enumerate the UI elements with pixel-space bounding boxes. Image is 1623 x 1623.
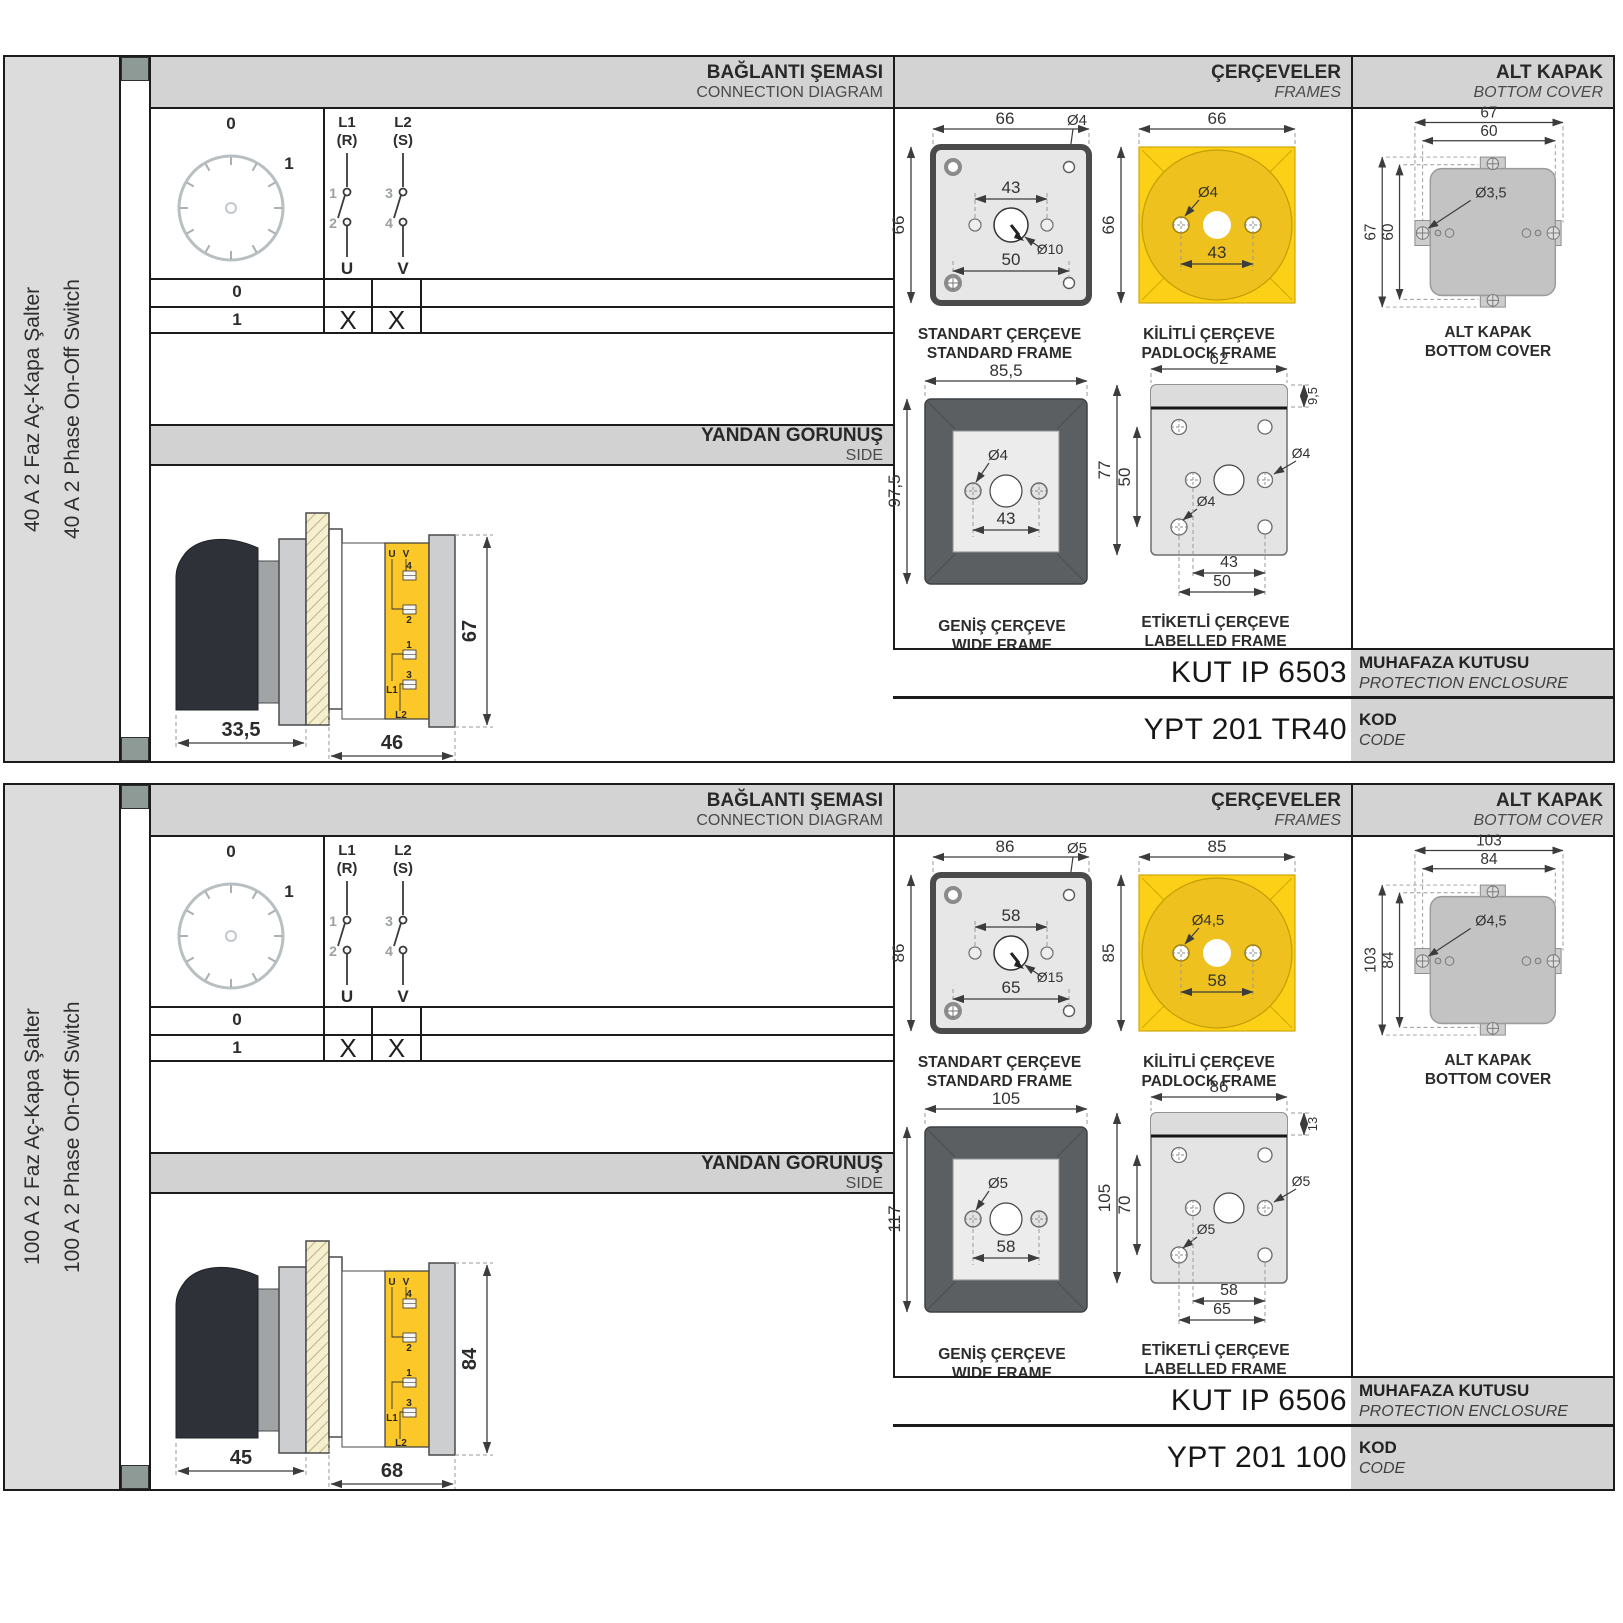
dim-label: 66	[889, 216, 908, 235]
pole2-contact	[394, 153, 407, 257]
contact-diagram: L1 (R) L2 (S) 1 2 3 4 U V	[323, 839, 473, 1006]
labelled-frame-label: ETİKETLİ ÇERÇEVELABELLED FRAME	[1103, 1341, 1328, 1380]
table-row-position-0: 0	[151, 1006, 893, 1034]
position-label: 1	[151, 1036, 323, 1060]
dim-label: 58	[1220, 1282, 1238, 1299]
product-section-100a: 100 A 2 Faz Aç-Kapa Şalter 100 A 2 Phase…	[3, 783, 1615, 1491]
contact-number: 3	[385, 185, 393, 201]
cover-body	[1415, 885, 1561, 1035]
hole-diameter-label: Ø5	[1292, 1173, 1311, 1189]
product-name-english: 100 A 2 Phase On-Off Switch	[61, 785, 85, 1489]
terminal-u-label: U	[341, 987, 353, 1006]
spine-column	[121, 57, 151, 761]
standard-frame-label: STANDART ÇERÇEVESTANDARD FRAME	[897, 325, 1102, 364]
table-row-position-0: 0	[151, 278, 893, 306]
product-name-turkish: 40 A 2 Faz Aç-Kapa Şalter	[21, 57, 45, 761]
pole1-contact	[338, 881, 351, 985]
hole-diameter-label: Ø5	[1067, 840, 1087, 857]
switch-position-dial: 0 1	[151, 839, 323, 1006]
svg-text:L1: L1	[386, 1413, 398, 1424]
pole1-contact	[338, 153, 351, 257]
table-filler-cell	[420, 308, 893, 332]
dim-label: 84	[1480, 851, 1498, 868]
dim-label: 117	[885, 1205, 904, 1232]
dim-label: 67	[459, 620, 481, 642]
contact-number: 3	[385, 913, 393, 929]
dim-label: 50	[1002, 250, 1021, 269]
contact-closed-mark: X	[371, 1036, 420, 1060]
dim-label: 13	[1305, 1117, 1320, 1131]
side-view-header: YANDAN GÖRÜNÜŞ SIDE	[151, 1152, 893, 1194]
svg-text:U: U	[388, 1277, 395, 1288]
bottom-cover-drawing: 67 60 67 60	[1363, 109, 1613, 319]
dim-label: 65	[1002, 978, 1021, 997]
contact-closed-mark: X	[371, 308, 420, 332]
svg-text:3: 3	[406, 1398, 412, 1409]
position-label: 1	[151, 308, 323, 332]
table-filler-cell	[420, 1036, 893, 1060]
dim-label: 65	[1213, 1301, 1231, 1318]
pole1-sublabel: (R)	[337, 860, 358, 877]
bottom-cover-label: ALT KAPAKBOTTOM COVER	[1363, 1051, 1613, 1090]
frame-body	[933, 147, 1089, 303]
svg-text:3: 3	[406, 670, 412, 681]
svg-text:V: V	[403, 549, 410, 560]
wide-frame-drawing: 85,5 97,5 Ø4	[897, 365, 1107, 615]
side-title-tr: YANDAN GÖRÜNÜŞ	[701, 425, 883, 447]
dim-label: 66	[1208, 109, 1227, 128]
standard-frame-drawing: 86 Ø5 86	[897, 839, 1102, 1051]
wide-frame-drawing: 105 117 Ø5	[897, 1093, 1107, 1343]
registration-mark-bottom	[121, 737, 149, 761]
frame-body	[1151, 1113, 1287, 1283]
contact-number: 2	[329, 215, 337, 231]
dim-label: 77	[1095, 461, 1114, 480]
dim-label: 84	[1380, 951, 1397, 969]
switch-side-profile	[176, 513, 455, 727]
svg-text:L1: L1	[386, 685, 398, 696]
dial-position-0: 0	[226, 842, 235, 861]
side-title-en: SIDE	[846, 1175, 883, 1193]
position-label: 0	[151, 280, 323, 306]
cover-body	[1415, 157, 1561, 307]
contact-closed-mark: X	[323, 1036, 371, 1060]
bottom-cover-label: ALT KAPAKBOTTOM COVER	[1363, 323, 1613, 362]
header-title-tr: BAĞLANTI ŞEMASI	[707, 62, 883, 84]
frames-header: ÇERÇEVELER FRAMES	[893, 57, 1351, 109]
dim-label: 86	[889, 944, 908, 963]
header-title-tr: ÇERÇEVELER	[1211, 790, 1341, 812]
dim-label: 97,5	[885, 474, 904, 507]
dim-label: 85	[1208, 837, 1227, 856]
padlock-frame-drawing: 85 85 Ø4,5	[1109, 839, 1309, 1051]
svg-text:1: 1	[406, 1368, 412, 1379]
contact-number: 4	[385, 215, 393, 231]
table-filler-cell	[420, 280, 893, 306]
product-code-value: YPT 201 TR40	[893, 696, 1351, 761]
hole-diameter-label: Ø3,5	[1475, 185, 1506, 201]
svg-text:4: 4	[406, 1289, 412, 1300]
enclosure-code-value: KUT IP 6506	[893, 1376, 1351, 1424]
header-title-tr: ALT KAPAK	[1496, 62, 1603, 84]
frame-body	[1139, 875, 1295, 1031]
contact-diagram: L1 (R) L2 (S) 1 2 3 4 U V	[323, 111, 473, 278]
pole1-sublabel: (R)	[337, 132, 358, 149]
side-title-en: SIDE	[846, 447, 883, 465]
header-title-en: CONNECTION DIAGRAM	[696, 84, 883, 102]
enclosure-label: MUHAFAZA KUTUSU PROTECTION ENCLOSURE	[1351, 1376, 1613, 1424]
contact-closed-mark: X	[323, 308, 371, 332]
hole-diameter-label: Ø15	[1037, 969, 1064, 985]
registration-mark-top	[121, 57, 149, 81]
dim-label: 9,5	[1305, 387, 1320, 405]
product-name-english: 40 A 2 Phase On-Off Switch	[61, 57, 85, 761]
labelled-frame-label: ETİKETLİ ÇERÇEVELABELLED FRAME	[1103, 613, 1328, 652]
terminal-v-label: V	[397, 259, 409, 278]
side-view-header: YANDAN GÖRÜNÜŞ SIDE	[151, 424, 893, 466]
hole-diameter-label: Ø4	[1067, 112, 1087, 129]
bottom-cover-header: ALT KAPAK BOTTOM COVER	[1351, 785, 1613, 837]
bottom-cover-header: ALT KAPAK BOTTOM COVER	[1351, 57, 1613, 109]
hole-diameter-label: Ø4,5	[1475, 913, 1506, 929]
dim-label: 85	[1099, 944, 1118, 963]
pole1-label: L1	[338, 114, 356, 131]
product-name-turkish: 100 A 2 Faz Aç-Kapa Şalter	[21, 785, 45, 1489]
dim-label: 84	[459, 1347, 481, 1370]
header-title-en: BOTTOM COVER	[1474, 812, 1604, 830]
pole2-label: L2	[394, 114, 412, 131]
svg-text:L2: L2	[395, 710, 407, 721]
dim-label: 50	[1115, 468, 1134, 487]
header-title-en: CONNECTION DIAGRAM	[696, 812, 883, 830]
contact-state-cell	[323, 280, 371, 306]
table-row-position-1: 1 X X	[151, 1034, 893, 1062]
enclosure-code-value: KUT IP 6503	[893, 648, 1351, 696]
switch-side-profile	[176, 1241, 455, 1455]
frame-body	[925, 1127, 1087, 1312]
dial-position-0: 0	[226, 114, 235, 133]
dim-label: 66	[996, 109, 1015, 128]
dim-label: 58	[997, 1237, 1016, 1256]
dim-label: 60	[1380, 224, 1397, 241]
dim-label: 68	[381, 1460, 403, 1482]
product-section-40a: 40 A 2 Faz Aç-Kapa Şalter 40 A 2 Phase O…	[3, 55, 1615, 763]
frame-body	[1139, 147, 1295, 303]
hole-diameter-label: Ø4,5	[1192, 912, 1225, 929]
table-row-position-1: 1 X X	[151, 306, 893, 334]
dial-face	[179, 884, 283, 988]
dim-label: 62	[1210, 349, 1229, 368]
contact-number: 1	[329, 185, 337, 201]
dim-label: 66	[1099, 216, 1118, 235]
frame-body	[925, 399, 1087, 584]
product-sidebar: 100 A 2 Faz Aç-Kapa Şalter 100 A 2 Phase…	[5, 785, 121, 1489]
labelled-frame-drawing: 62 9,5 77 50	[1103, 355, 1328, 610]
dim-label: 58	[1208, 971, 1227, 990]
dim-label: 105	[1095, 1184, 1114, 1212]
svg-text:2: 2	[406, 615, 412, 626]
terminal-v-label: V	[397, 987, 409, 1006]
dial-face	[179, 156, 283, 260]
pole2-sublabel: (S)	[393, 132, 413, 149]
product-code-value: YPT 201 100	[893, 1424, 1351, 1489]
enclosure-label: MUHAFAZA KUTUSU PROTECTION ENCLOSURE	[1351, 648, 1613, 696]
pole2-label: L2	[394, 842, 412, 859]
svg-text:L2: L2	[395, 1438, 407, 1449]
svg-text:U: U	[388, 549, 395, 560]
svg-text:2: 2	[406, 1343, 412, 1354]
contact-number: 4	[385, 943, 393, 959]
contact-state-cell	[323, 1008, 371, 1034]
dim-label: 46	[381, 732, 403, 754]
table-filler-cell	[420, 1008, 893, 1034]
frames-header: ÇERÇEVELER FRAMES	[893, 785, 1351, 837]
registration-mark-bottom	[121, 1465, 149, 1489]
contact-number: 1	[329, 913, 337, 929]
spine-column	[121, 785, 151, 1489]
side-view-drawing: U V 4 2 1 3 L1 L2	[163, 1201, 623, 1491]
dim-label: 85,5	[989, 361, 1022, 380]
dim-label: 43	[1002, 178, 1021, 197]
header-title-tr: BAĞLANTI ŞEMASI	[707, 790, 883, 812]
dial-position-1: 1	[284, 154, 293, 173]
labelled-frame-drawing: 86 13 105 70	[1103, 1083, 1328, 1338]
dim-label: 103	[1476, 833, 1502, 850]
product-sidebar: 40 A 2 Faz Aç-Kapa Şalter 40 A 2 Phase O…	[5, 57, 121, 761]
bottom-cover-drawing: 103 84 103 84	[1363, 837, 1613, 1047]
dim-label: 67	[1480, 105, 1497, 122]
dim-label: 86	[996, 837, 1015, 856]
pole2-sublabel: (S)	[393, 860, 413, 877]
hole-diameter-label: Ø4	[1198, 184, 1218, 201]
dial-position-1: 1	[284, 882, 293, 901]
hole-diameter-label: Ø10	[1037, 241, 1064, 257]
dim-label: 43	[1220, 554, 1238, 571]
dim-label: 86	[1210, 1077, 1229, 1096]
header-title-en: FRAMES	[1274, 84, 1341, 102]
hole-diameter-label: Ø4	[988, 447, 1008, 464]
registration-mark-top	[121, 785, 149, 809]
side-title-tr: YANDAN GÖRÜNÜŞ	[701, 1153, 883, 1175]
standard-frame-drawing: 66 Ø4 66	[897, 111, 1102, 323]
padlock-frame-drawing: 66 66 Ø4	[1109, 111, 1309, 323]
hole-diameter-label: Ø5	[988, 1175, 1008, 1192]
dim-label: 67	[1363, 224, 1380, 241]
header-title-en: BOTTOM COVER	[1474, 84, 1604, 102]
position-label: 0	[151, 1008, 323, 1034]
side-view-drawing: U V 4 2 1 3 L1 L2	[163, 473, 623, 763]
frame-body	[1151, 385, 1287, 555]
svg-text:V: V	[403, 1277, 410, 1288]
dim-label: 45	[230, 1447, 252, 1469]
product-code-label: KOD CODE	[1351, 1424, 1613, 1489]
frame-body	[933, 875, 1089, 1031]
dim-label: 50	[1213, 573, 1231, 590]
terminal-u-label: U	[341, 259, 353, 278]
contact-state-cell	[371, 280, 420, 306]
hole-diameter-label: Ø5	[1197, 1221, 1216, 1237]
dim-label: 43	[997, 509, 1016, 528]
dim-label: 58	[1002, 906, 1021, 925]
switch-position-dial: 0 1	[151, 111, 323, 278]
header-title-tr: ALT KAPAK	[1496, 790, 1603, 812]
pole2-contact	[394, 881, 407, 985]
contact-number: 2	[329, 943, 337, 959]
hole-diameter-label: Ø4	[1197, 493, 1216, 509]
header-title-en: FRAMES	[1274, 812, 1341, 830]
section-content: BAĞLANTI ŞEMASI CONNECTION DIAGRAM ÇERÇE…	[151, 57, 1613, 761]
connection-diagram-header: BAĞLANTI ŞEMASI CONNECTION DIAGRAM	[151, 785, 893, 837]
standard-frame-label: STANDART ÇERÇEVESTANDARD FRAME	[897, 1053, 1102, 1092]
contact-state-cell	[371, 1008, 420, 1034]
section-content: BAĞLANTI ŞEMASI CONNECTION DIAGRAM ÇERÇE…	[151, 785, 1613, 1489]
dim-label: 43	[1208, 243, 1227, 262]
pole1-label: L1	[338, 842, 356, 859]
dim-label: 60	[1480, 123, 1497, 140]
hole-diameter-label: Ø4	[1292, 445, 1311, 461]
svg-text:1: 1	[406, 640, 412, 651]
svg-text:4: 4	[406, 561, 412, 572]
product-code-label: KOD CODE	[1351, 696, 1613, 761]
dim-label: 70	[1115, 1196, 1134, 1215]
dim-label: 105	[992, 1089, 1020, 1108]
header-title-tr: ÇERÇEVELER	[1211, 62, 1341, 84]
dim-label: 33,5	[222, 719, 261, 741]
connection-diagram-header: BAĞLANTI ŞEMASI CONNECTION DIAGRAM	[151, 57, 893, 109]
dim-label: 103	[1363, 947, 1380, 973]
